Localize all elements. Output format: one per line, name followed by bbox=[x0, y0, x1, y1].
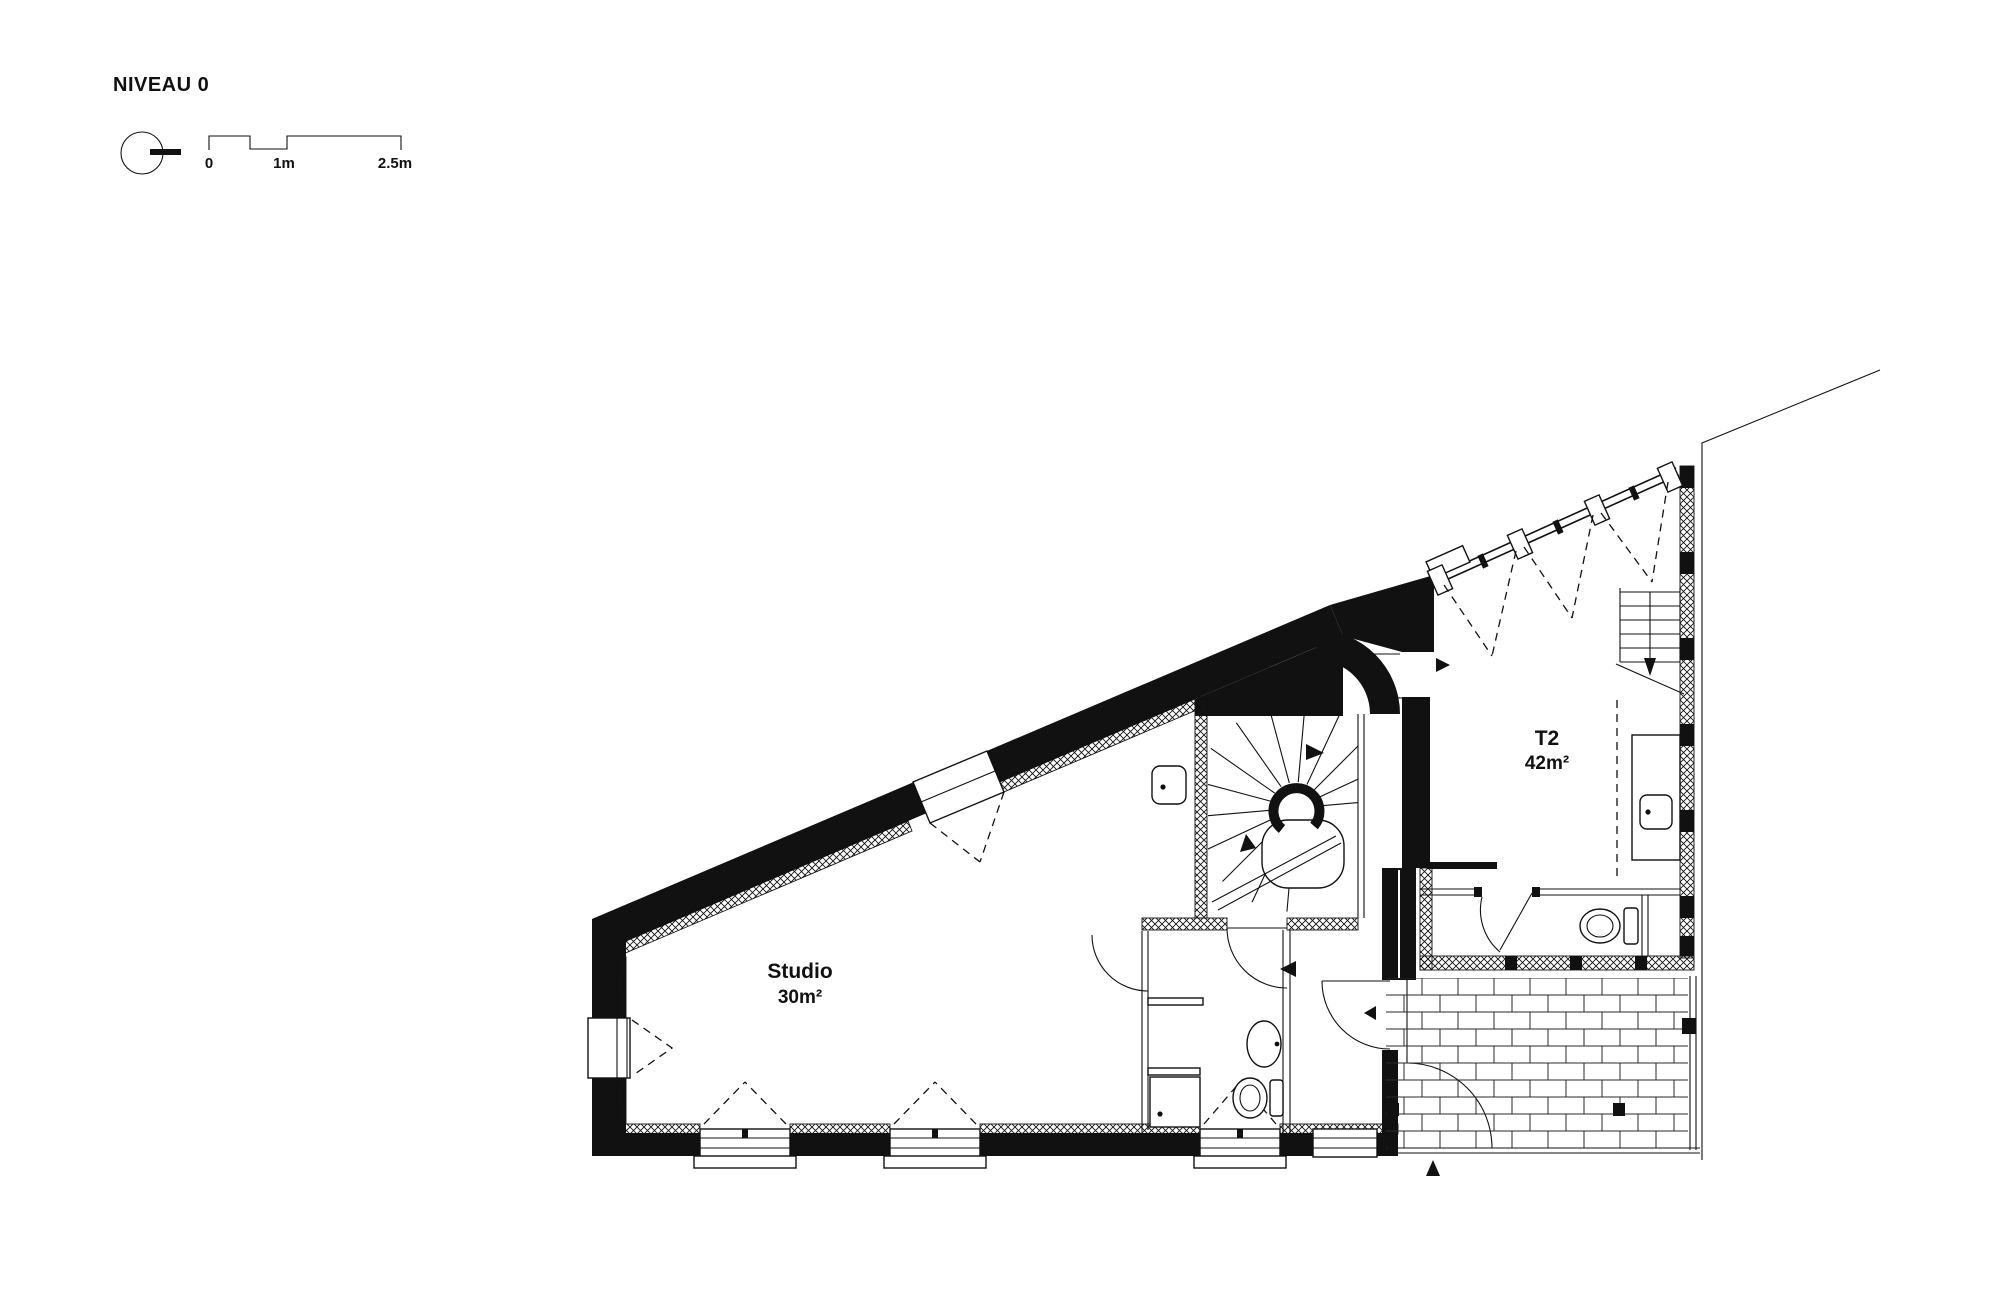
stair-down-arrow-icon bbox=[1644, 658, 1656, 676]
scale-label-1m: 1m bbox=[273, 155, 295, 172]
water-heater bbox=[1152, 766, 1186, 804]
door-shower-lobby bbox=[1092, 935, 1148, 991]
t2-left-wall bbox=[1402, 697, 1430, 868]
stair-tread-line bbox=[1298, 704, 1305, 782]
window-swing-dashes bbox=[704, 1082, 786, 1124]
bath-partition-stub bbox=[1148, 1068, 1200, 1075]
level-marker-icon bbox=[121, 132, 181, 174]
terrace-post bbox=[1682, 1018, 1696, 1034]
stair-tread-line bbox=[1320, 764, 1391, 797]
straight-stair bbox=[1616, 588, 1684, 694]
spiral-staircase bbox=[1192, 704, 1399, 918]
window-diagonal-wall bbox=[913, 751, 1004, 862]
stair-tread-line bbox=[1236, 723, 1281, 787]
toilet-studio bbox=[1233, 1078, 1283, 1118]
door-corridor-to-terrace bbox=[1322, 981, 1390, 1049]
stair-tread-line bbox=[1314, 734, 1369, 789]
entrance-arrow-icon bbox=[1364, 1006, 1376, 1020]
floor-plan-drawing: NIVEAU 0 0 1m 2.5m bbox=[0, 0, 2000, 1300]
scale-label-25m: 2.5m bbox=[378, 155, 412, 172]
t2-bath-stub-wall bbox=[1427, 862, 1497, 869]
scale-label-0: 0 bbox=[205, 155, 213, 172]
t2-bath-left-wall bbox=[1420, 868, 1432, 970]
plan-title: NIVEAU 0 bbox=[113, 74, 209, 96]
stair-direction-arrow bbox=[1240, 834, 1256, 852]
entrance-arrow-icon bbox=[1426, 1160, 1440, 1176]
terrace bbox=[1386, 976, 1700, 1153]
stair-tread-line bbox=[1211, 748, 1275, 793]
bathroom-sink bbox=[1247, 1021, 1281, 1067]
studio-label: Studio bbox=[767, 960, 832, 983]
kitchen-counter bbox=[1632, 735, 1680, 860]
facade-post bbox=[1507, 529, 1532, 559]
t2-label: T2 bbox=[1535, 727, 1560, 750]
window-south-1 bbox=[694, 1082, 796, 1168]
east-wall bbox=[1680, 466, 1694, 958]
terrace-post bbox=[1613, 1103, 1625, 1116]
window-south-2 bbox=[884, 1082, 986, 1168]
brick-paving bbox=[1386, 978, 1688, 1148]
toilet-t2 bbox=[1580, 908, 1638, 944]
t2-area-label: 42m² bbox=[1525, 753, 1569, 774]
scale-bar: 0 1m 2.5m bbox=[205, 136, 412, 172]
entrance-arrow-icon bbox=[1280, 961, 1296, 977]
facade-post bbox=[1657, 462, 1682, 492]
terrace-post bbox=[1387, 1103, 1399, 1116]
insulation-hatch bbox=[605, 466, 1694, 1134]
studio-area-label: 30m² bbox=[778, 987, 822, 1008]
stair-tread-line bbox=[1269, 708, 1289, 783]
south-wall-door-opening bbox=[1313, 1129, 1377, 1157]
window-swing-dashes bbox=[632, 1020, 672, 1076]
window-west-wall bbox=[588, 1018, 672, 1078]
shower-tray bbox=[1150, 1077, 1200, 1127]
stair-direction-arrow bbox=[1306, 744, 1324, 760]
entrance-arrow-icon bbox=[1436, 658, 1450, 672]
t2-bath-south-wall bbox=[1420, 956, 1694, 970]
title-block: NIVEAU 0 0 1m 2.5m bbox=[113, 74, 412, 174]
terrace-gate bbox=[1407, 980, 1492, 1148]
stair-partition-wall bbox=[1195, 697, 1207, 918]
door-bathroom-from-hall bbox=[1227, 928, 1287, 988]
site-boundary bbox=[1702, 370, 1880, 1160]
glass-facade bbox=[1426, 462, 1683, 656]
door-t2-bathroom bbox=[1474, 887, 1540, 952]
floor-plan-page: NIVEAU 0 0 1m 2.5m bbox=[0, 0, 2000, 1300]
stair-tread-line bbox=[1322, 799, 1400, 806]
window-swing-dashes bbox=[894, 1082, 976, 1124]
bath-partition-stub bbox=[1148, 998, 1203, 1005]
